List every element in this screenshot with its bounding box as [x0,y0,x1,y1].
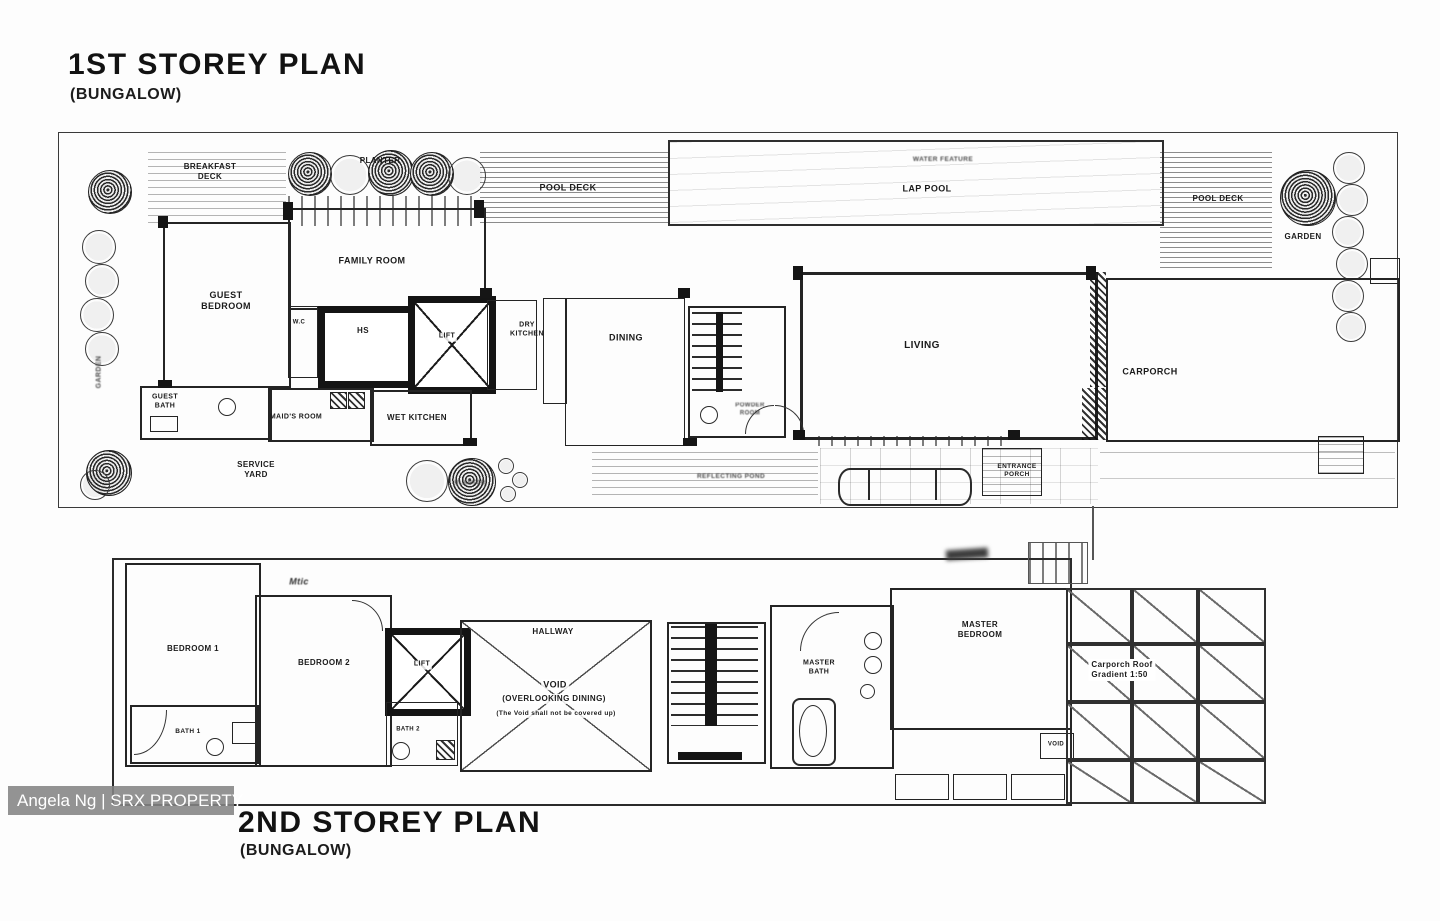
tree-icon [88,170,132,214]
garden-left-label: GARDEN [96,356,105,389]
living-room [800,272,1098,440]
hatched-wall [1082,388,1108,440]
bathtub-inner [799,705,827,757]
roof-panel [1198,760,1266,804]
living-label: LIVING [904,340,940,353]
void-title-label: VOID [541,679,569,690]
sink-icon [232,722,256,744]
garden-right-label: GARDEN [1284,232,1321,242]
small-void-label: VOID [1048,741,1064,749]
wall-segment [678,288,690,298]
wall-segment [463,438,477,446]
shrub-icon [1336,184,1368,216]
water-feature-label: WATER FEATURE [913,156,973,164]
kitchen-island [543,298,567,404]
lift-label-second: LIFT [412,661,432,670]
toilet-icon [392,742,410,760]
hatched-wall [1090,272,1106,387]
living-window-sill [818,436,1008,446]
hallway-label: HALLWAY [530,627,575,637]
washer-icon [348,392,365,409]
connector-line [1092,506,1094,560]
master-bath-label: MASTER BATH [803,659,835,677]
shrub-icon [80,470,110,500]
roof-panel [1198,702,1266,760]
shrub-icon [85,264,119,298]
lift-shaft-first [408,296,496,394]
carporch [1106,278,1400,442]
breakfast-deck-label: BREAKFAST DECK [184,162,237,182]
shrub-icon [80,298,114,332]
car-icon [838,468,972,506]
void-subtitle-label: (OVERLOOKING DINING) [500,694,608,704]
stair-landing [678,752,742,760]
terrace-planter [953,774,1007,800]
service-yard-label: SERVICE YARD [237,460,275,480]
pool-deck-right-area [1160,152,1272,270]
roof-panel [1132,702,1198,760]
hs-label: HS [357,326,369,336]
wall-segment [158,380,172,388]
shrub-icon [1333,152,1365,184]
toilet-icon [206,738,224,756]
drive-line [1100,452,1395,453]
roof-panel [1132,760,1198,804]
wall-segment [1086,266,1096,280]
stair-stringer-second [705,624,717,726]
dining-room [565,298,685,446]
first-storey-subtitle: (BUNGALOW) [70,86,182,104]
reflecting-pond-label: REFLECTING POND [697,473,765,481]
hatched-ledge [1028,542,1088,584]
guest-bedroom-label: GUEST BEDROOM [201,290,251,313]
roof-panel [1198,588,1266,644]
wall-segment [474,200,484,218]
floorplan-page: 1ST STOREY PLAN (BUNGALOW) BREAKFAST DEC… [0,0,1440,921]
dining-label: DINING [609,332,643,343]
void-note-label: (The Void shall not be covered up) [494,710,617,718]
sink-icon [150,416,178,432]
shrub-icon [1332,216,1364,248]
planter-label: PLANTER [360,156,401,166]
planter-small-label: PLANTER [454,480,485,488]
pool-deck-right-label: POOL DECK [1192,194,1243,204]
shower-icon [436,740,455,760]
car-rear-line [935,470,937,500]
wall-segment [283,202,293,220]
carporch-label: CARPORCH [1122,366,1177,377]
wall-segment [793,430,805,440]
kitchen-counter [487,300,537,390]
household-shelter [318,306,416,388]
family-room-label: FAMILY ROOM [339,255,406,266]
stone-icon [512,472,528,488]
wall-segment [793,266,803,280]
stone-icon [500,486,516,502]
roof-panel [1132,588,1198,644]
tree-icon [288,152,332,196]
bedroom-2-label: BEDROOM 2 [298,658,350,668]
wet-kitchen-label: WET KITCHEN [387,413,447,423]
entrance-porch-label: ENTRANCE PORCH [997,463,1036,479]
bath-1-label: BATH 1 [175,728,200,736]
wc-room [288,306,318,378]
master-bedroom [890,588,1072,730]
pool-deck-left-label: POOL DECK [540,182,597,193]
handwritten-annotation: Mtic [289,576,309,587]
shrub-icon [82,230,116,264]
stair-stringer-first [716,312,723,392]
guest-bath-label: GUEST BATH [152,393,178,411]
washer-icon [330,392,347,409]
lift-label-first: LIFT [437,333,457,342]
wall-segment [683,438,697,446]
terrace-planter [895,774,949,800]
dry-kitchen-label: DRY KITCHEN [510,321,544,339]
second-storey-title: 2ND STOREY PLAN [238,806,541,840]
roof-panel [1066,588,1132,644]
bath-2-label: BATH 2 [396,726,420,734]
stone-icon [498,458,514,474]
carporch-roof-label: Carporch Roof Gradient 1:50 [1088,659,1155,681]
car-windshield-line [868,470,870,500]
maids-room-label: MAID'S ROOM [270,414,322,423]
toilet-icon [218,398,236,416]
toilet-icon [700,406,718,424]
first-storey-title: 1ST STOREY PLAN [68,48,366,82]
wall-segment [158,216,168,228]
lap-pool-label: LAP POOL [902,183,951,194]
roof-panel [1066,760,1132,804]
terrace-planter [1011,774,1065,800]
tree-icon [1280,170,1336,226]
sink-icon [860,684,875,699]
drive-line [1100,478,1395,479]
bidet-icon [864,656,882,674]
master-bedroom-label: MASTER BEDROOM [958,620,1003,640]
watermark: Angela Ng | SRX PROPERTY [8,786,234,815]
bedroom-1-label: BEDROOM 1 [167,644,219,654]
shrub-icon [1336,248,1368,280]
carporch-steps [1318,436,1364,474]
toilet-icon [864,632,882,650]
wc-label: W.C [293,319,306,327]
roof-panel [1066,702,1132,760]
tree-icon [406,460,448,502]
second-storey-subtitle: (BUNGALOW) [240,842,352,860]
wall-segment [1008,430,1020,440]
roof-panel [1198,644,1266,702]
wall-segment [480,288,492,298]
